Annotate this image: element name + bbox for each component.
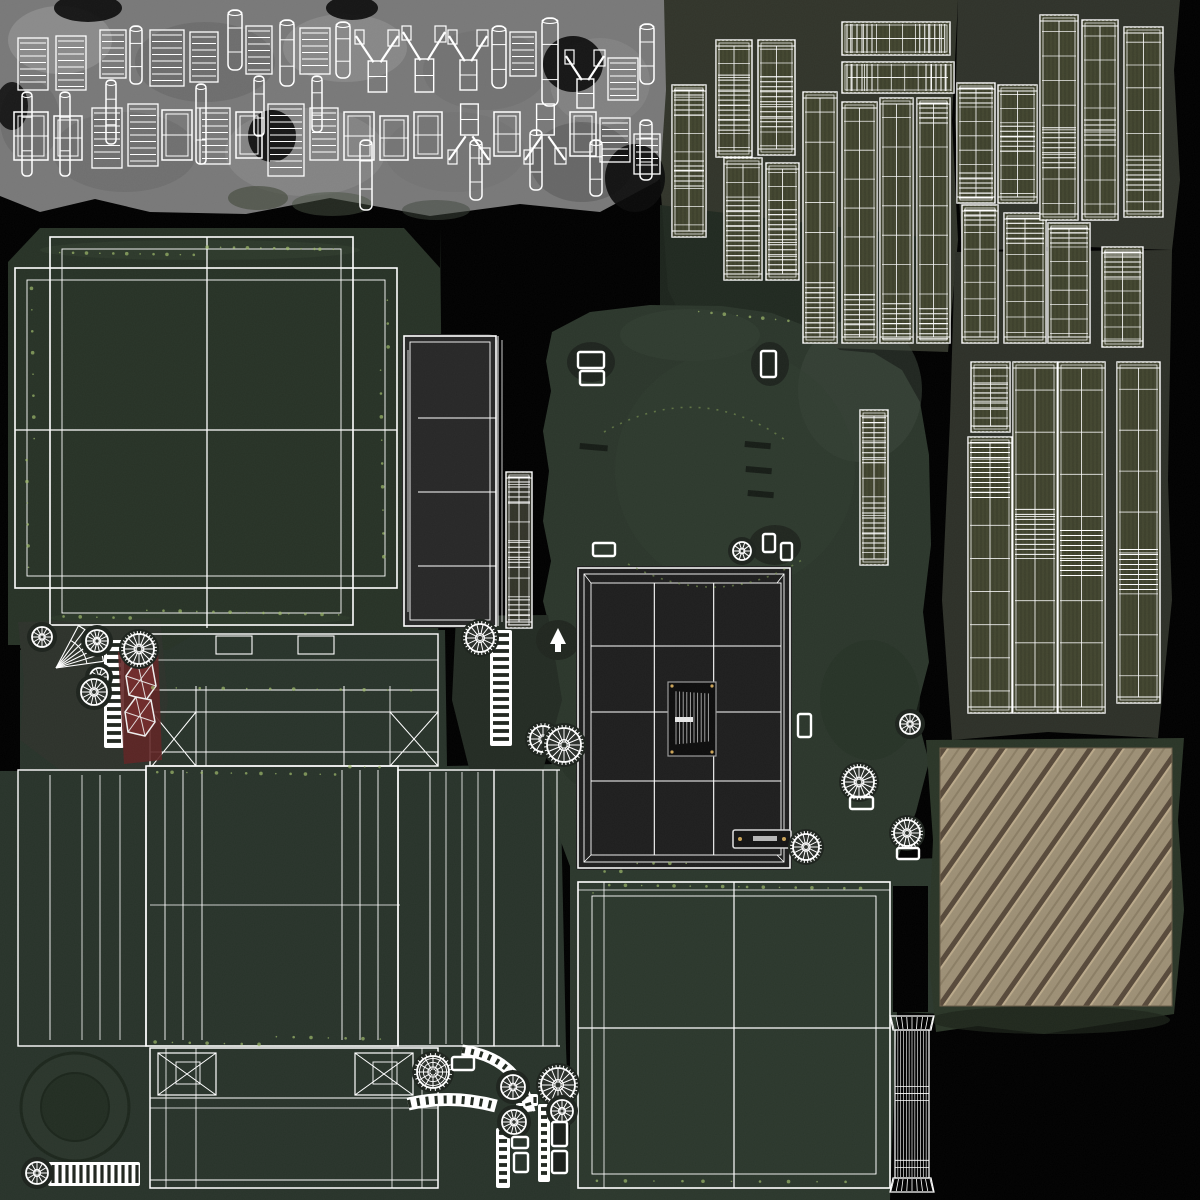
uv-texture-atlas-page <box>0 0 1200 1200</box>
uv-texture-atlas-canvas <box>0 0 1200 1200</box>
film-grain-overlay <box>0 0 1200 1200</box>
